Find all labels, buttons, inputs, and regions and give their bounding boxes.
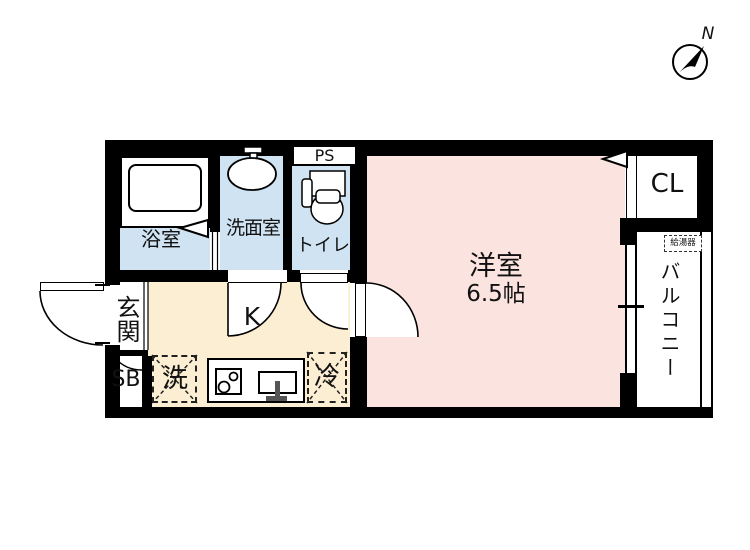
- kitchen-faucet: [275, 381, 280, 398]
- floorplan-canvas: PS 給湯器: [0, 0, 750, 550]
- western-door-swing: [366, 283, 418, 337]
- shoebox-label: SB: [109, 368, 143, 392]
- fridge-label: 冷: [312, 362, 342, 392]
- toilet-icon: [302, 171, 345, 224]
- entrance-door-swing: [40, 291, 103, 345]
- kitchen-label: K: [238, 303, 266, 330]
- western-room-size: 6.5帖: [450, 281, 542, 307]
- closet-door-indicator: [603, 151, 627, 167]
- toilet-label: トイレ: [295, 236, 351, 256]
- washroom-sink-icon: [228, 147, 276, 190]
- north-label: N: [698, 24, 718, 44]
- bathroom-label: 浴室: [131, 228, 191, 250]
- washroom-label: 洗面室: [220, 218, 286, 239]
- western-room-label: 洋室: [450, 252, 542, 281]
- closet-label: CL: [646, 170, 688, 198]
- washer-label: 洗: [160, 364, 190, 394]
- compass-icon: [673, 45, 707, 79]
- plan-linework: [0, 0, 750, 550]
- stove-burner-small: [230, 373, 238, 381]
- stove-burner-large: [219, 382, 230, 393]
- balcony-label: バルコニー: [656, 246, 682, 396]
- entrance-label: 玄関: [112, 290, 140, 348]
